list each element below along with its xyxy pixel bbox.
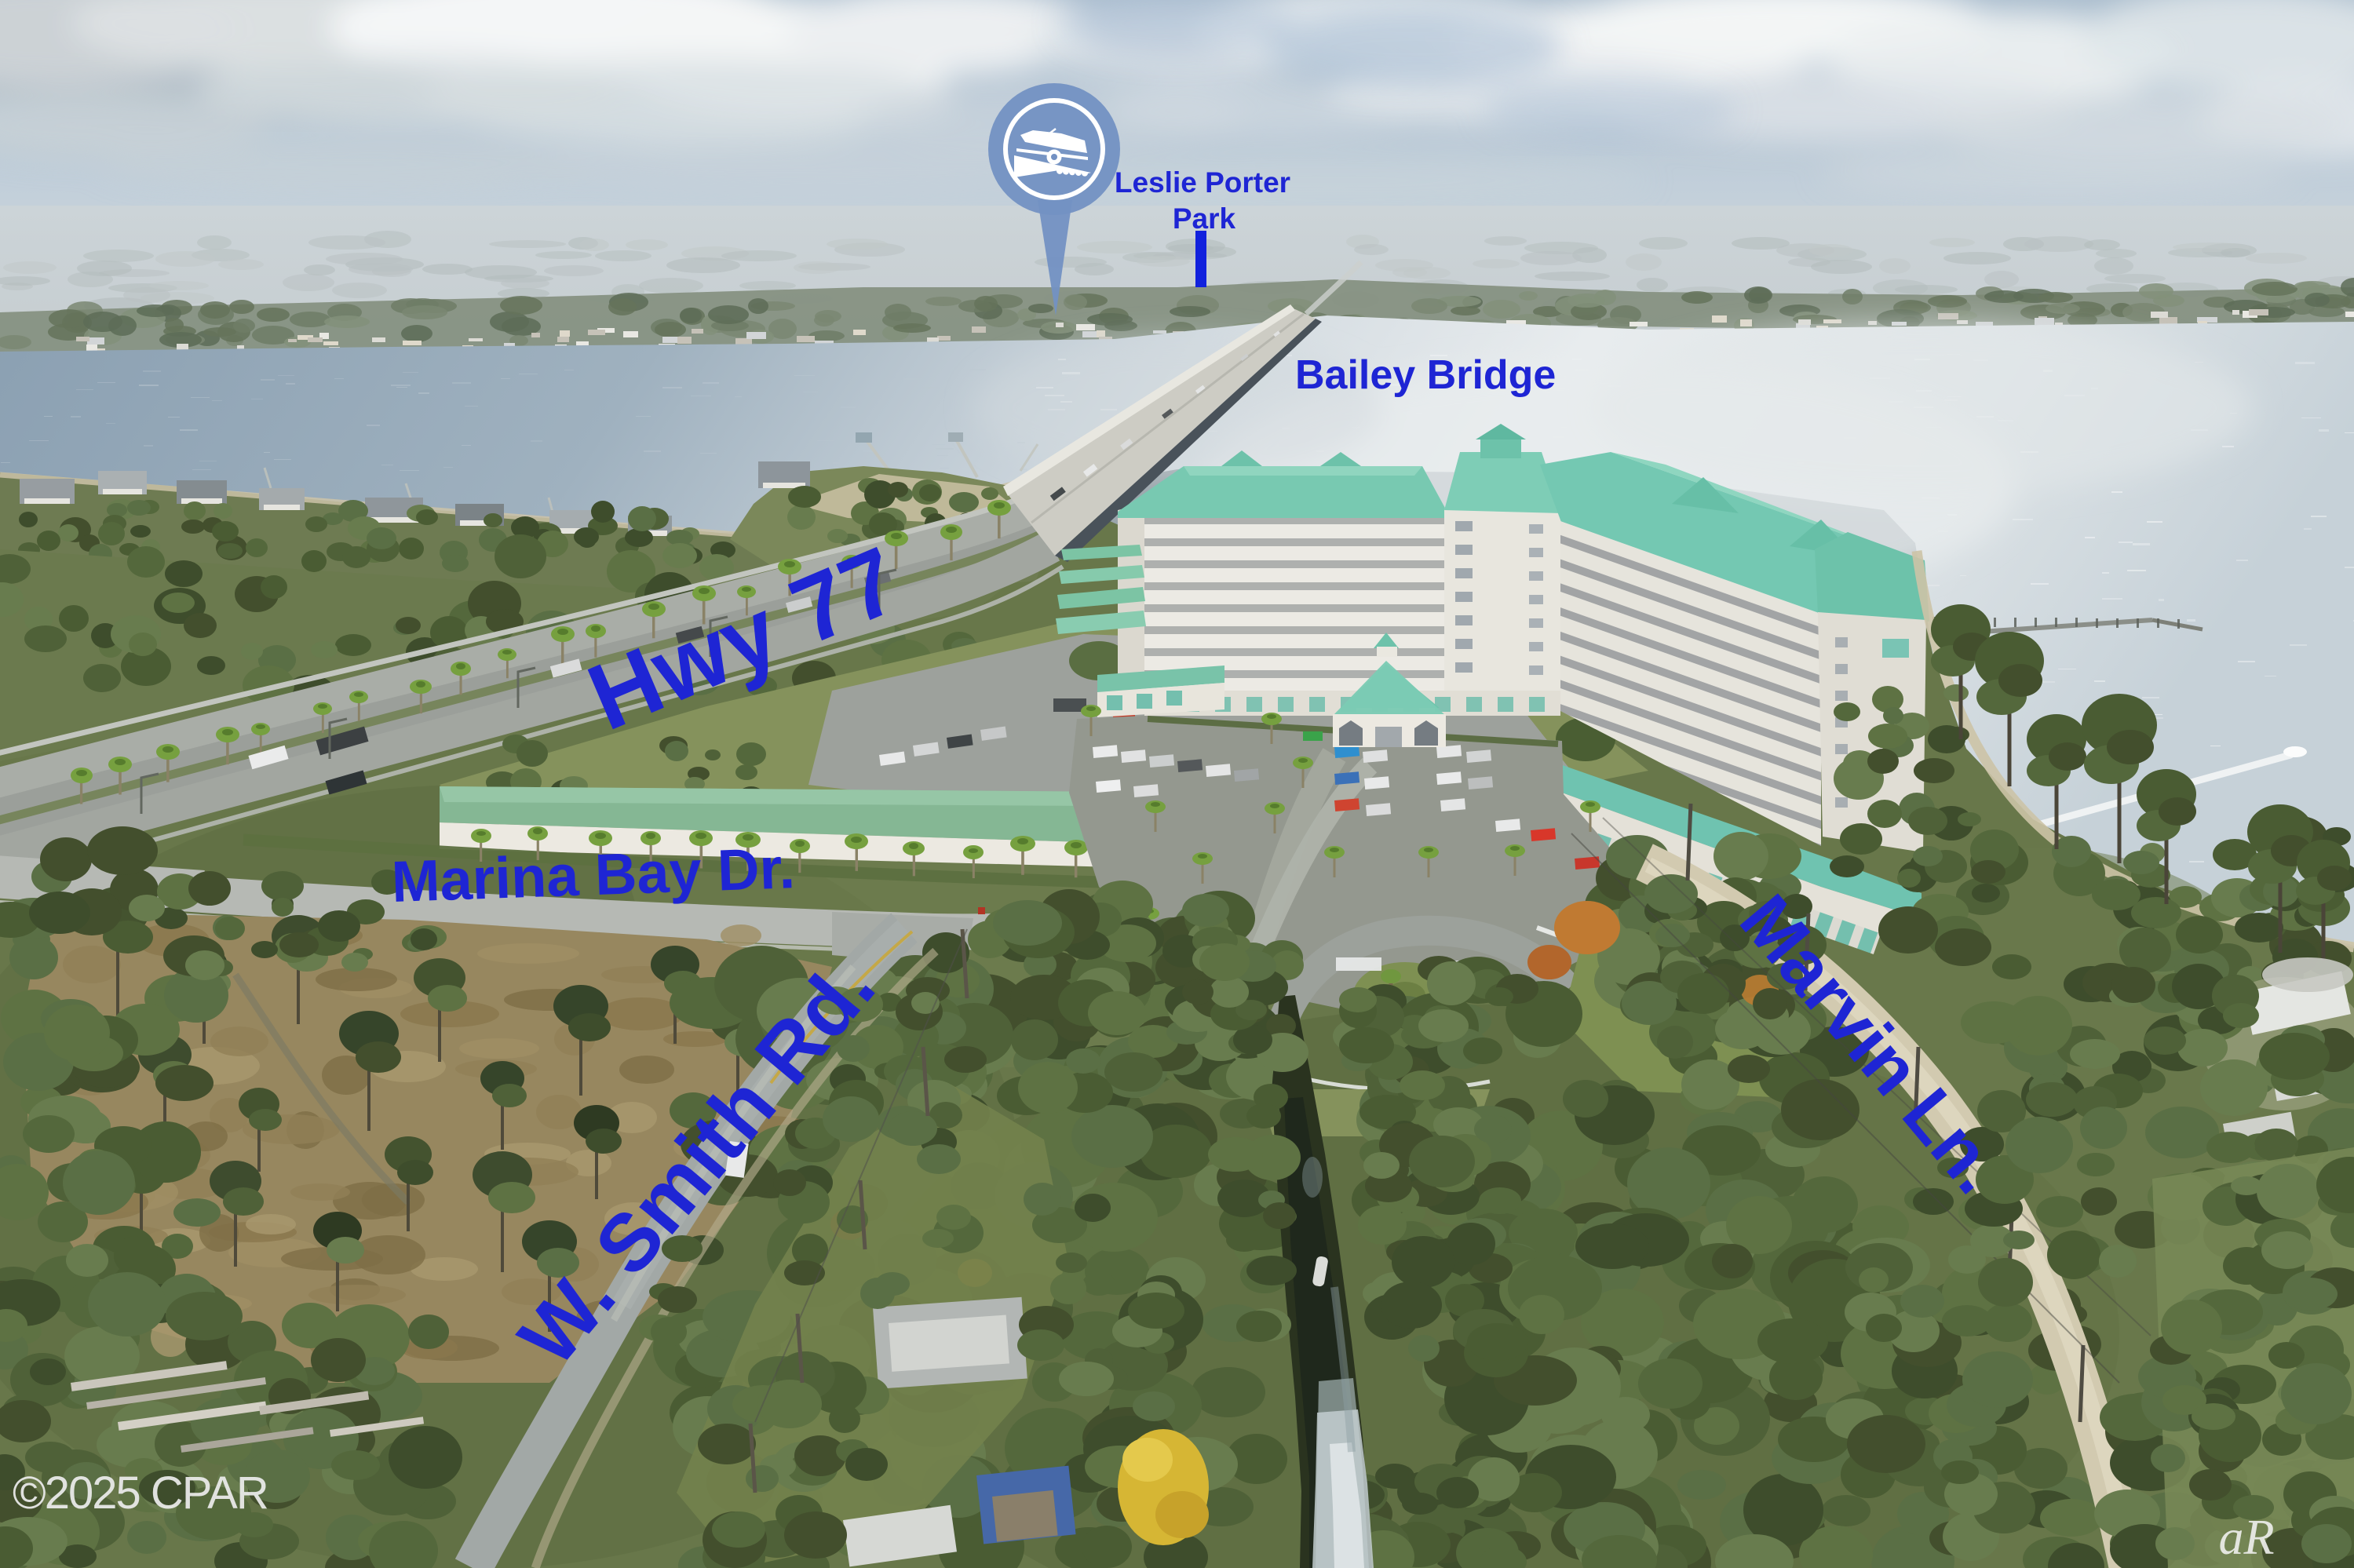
svg-text:aR: aR	[2218, 1509, 2274, 1565]
svg-text:Leslie Porter: Leslie Porter	[1115, 166, 1290, 199]
svg-text:Park: Park	[1173, 202, 1236, 235]
svg-text:Bailey Bridge: Bailey Bridge	[1295, 352, 1556, 398]
svg-text:©2025 CPAR: ©2025 CPAR	[13, 1468, 268, 1519]
